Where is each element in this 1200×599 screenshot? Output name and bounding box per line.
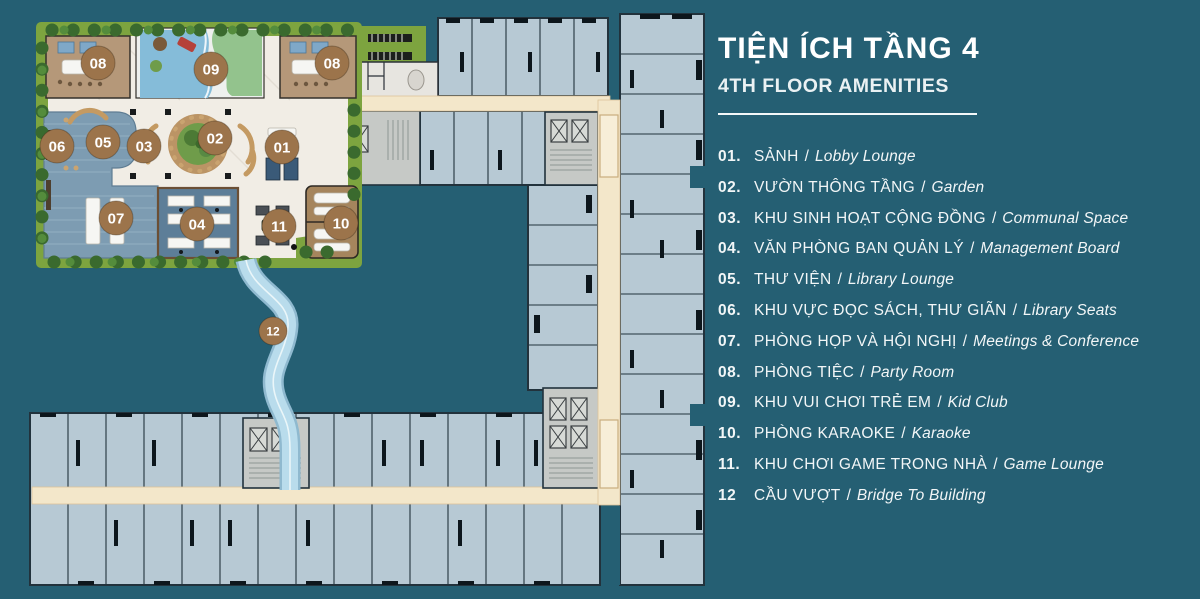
legend-vi: THƯ VIỆN [754,271,832,289]
legend-item: 04.VĂN PHÒNG BAN QUẢN LÝ/Management Boar… [718,240,1193,271]
marker-11: 11 [262,209,296,243]
legend-en: Library Lounge [848,271,954,289]
legend-sep: / [860,364,864,382]
legend-sep: / [805,148,809,166]
legend-en: Karaoke [912,425,971,443]
legend-sep: / [937,394,941,412]
legend-num: 04. [718,240,754,258]
svg-text:08: 08 [324,55,341,72]
svg-text:05: 05 [95,134,112,151]
legend-num: 09. [718,394,754,412]
svg-text:09: 09 [203,61,220,78]
legend-item: 03.KHU SINH HOẠT CỘNG ĐỒNG/Communal Spac… [718,210,1193,241]
marker-06: 06 [40,129,74,163]
legend-item: 09.KHU VUI CHƠI TRẺ EM/Kid Club [718,394,1193,425]
legend-item: 12CẦU VƯỢT/Bridge To Building [718,487,1193,518]
legend-sep: / [921,179,925,197]
marker-04: 04 [180,207,214,241]
legend-item: 10.PHÒNG KARAOKE/Karaoke [718,425,1193,456]
marker-08: 08 [81,46,115,80]
legend-num: 01. [718,148,754,166]
legend-sep: / [1013,302,1017,320]
right-tower-building [598,14,706,585]
tower-core [543,388,600,488]
legend-en: Kid Club [948,394,1008,412]
legend-vi: KHU SINH HOẠT CỘNG ĐỒNG [754,210,986,228]
legend-en: Party Room [870,364,954,382]
svg-text:11: 11 [271,218,287,235]
sky-lobby-lower [600,420,618,488]
legend-vi: PHÒNG KARAOKE [754,425,895,443]
legend-en: Garden [931,179,984,197]
legend-vi: VƯỜN THÔNG TẦNG [754,179,915,197]
legend-vi: CẦU VƯỢT [754,487,841,505]
svg-text:12: 12 [266,324,280,338]
marker-12: 12 [259,317,287,345]
legend-item: 06.KHU VỰC ĐỌC SÁCH, THƯ GIÃN/Library Se… [718,302,1193,333]
svg-text:07: 07 [108,210,125,227]
legend-en: Game Lounge [1004,456,1104,474]
svg-text:08: 08 [90,55,107,72]
legend-en: Communal Space [1002,210,1128,228]
legend-en: Lobby Lounge [815,148,916,166]
marker-03: 03 [127,129,161,163]
legend-sep: / [838,271,842,289]
legend-item: 07.PHÒNG HỌP VÀ HỘI NGHỊ/Meetings & Conf… [718,333,1193,364]
bottom-corridor [32,487,610,504]
legend-num: 12 [718,487,754,505]
legend-num: 05. [718,271,754,289]
marker-07: 07 [99,201,133,235]
marker-08: 08 [315,46,349,80]
marker-01: 01 [265,130,299,164]
legend-sep: / [993,456,997,474]
floorplan-page: { "panel": { "title": "TIỆN ÍCH TẦNG 4",… [0,0,1200,599]
legend-num: 10. [718,425,754,443]
marker-05: 05 [86,125,120,159]
legend-vi: SẢNH [754,148,799,166]
svg-text:10: 10 [333,215,350,232]
svg-text:02: 02 [207,130,224,147]
legend-vi: VĂN PHÒNG BAN QUẢN LÝ [754,240,964,258]
legend-sep: / [847,487,851,505]
svg-text:01: 01 [274,139,291,156]
amenities-panel: TIỆN ÍCH TẦNG 4 4TH FLOOR AMENITIES 01.S… [718,32,1193,518]
legend-list: 01.SẢNH/Lobby Lounge02.VƯỜN THÔNG TẦNG/G… [718,148,1193,518]
legend-vi: PHÒNG TIỆC [754,364,854,382]
page-title: TIỆN ÍCH TẦNG 4 [718,32,1193,66]
bottom-wing-building [30,413,610,585]
legend-en: Meetings & Conference [973,333,1139,351]
sky-lobby-upper [600,115,618,177]
legend-num: 06. [718,302,754,320]
marker-02: 02 [198,121,232,155]
legend-vi: PHÒNG HỌP VÀ HỘI NGHỊ [754,333,957,351]
legend-sep: / [963,333,967,351]
legend-item: 02.VƯỜN THÔNG TẦNG/Garden [718,179,1193,210]
svg-text:06: 06 [49,138,66,155]
legend-vi: KHU VUI CHƠI TRẺ EM [754,394,931,412]
legend-en: Library Seats [1023,302,1117,320]
legend-num: 11. [718,456,754,474]
svg-text:04: 04 [189,216,206,233]
legend-en: Management Board [980,240,1119,258]
legend-vi: KHU CHƠI GAME TRONG NHÀ [754,456,987,474]
legend-num: 02. [718,179,754,197]
legend-item: 05.THƯ VIỆN/Library Lounge [718,271,1193,302]
legend-item: 01.SẢNH/Lobby Lounge [718,148,1193,179]
legend-num: 08. [718,364,754,382]
legend-num: 07. [718,333,754,351]
marker-10: 10 [324,206,358,240]
legend-sep: / [901,425,905,443]
legend-sep: / [992,210,996,228]
legend-item: 11.KHU CHƠI GAME TRONG NHÀ/Game Lounge [718,456,1193,487]
title-divider [718,113,977,115]
entry-hall [352,62,438,98]
legend-vi: KHU VỰC ĐỌC SÁCH, THƯ GIÃN [754,302,1007,320]
legend-sep: / [970,240,974,258]
svg-text:03: 03 [136,138,153,155]
legend-num: 03. [718,210,754,228]
legend-en: Bridge To Building [857,487,986,505]
legend-item: 08.PHÒNG TIỆC/Party Room [718,364,1193,395]
page-subtitle: 4TH FLOOR AMENITIES [718,75,1193,98]
marker-09: 09 [194,52,228,86]
